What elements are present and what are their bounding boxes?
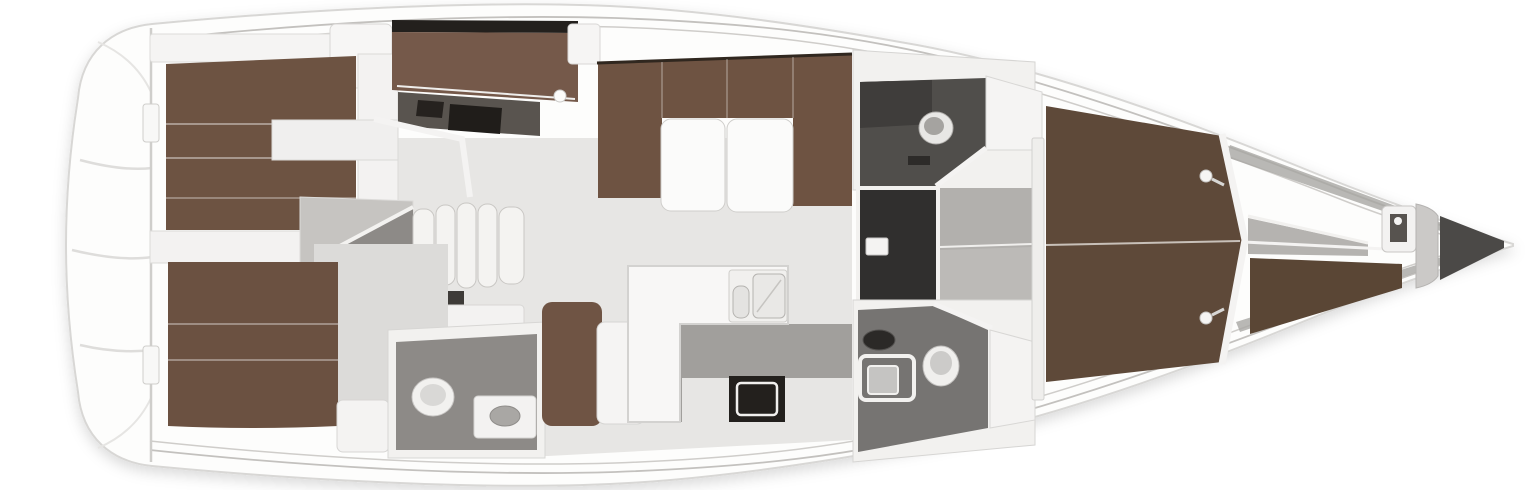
passage-floor-light (940, 247, 1032, 304)
passageway (940, 188, 1032, 304)
yacht-floorplan: Sailing yacht interior floor plan — over… (0, 0, 1533, 490)
step (499, 207, 524, 284)
toilet-bowl (420, 384, 446, 406)
step (457, 203, 476, 288)
step (478, 204, 497, 287)
salon-locker (568, 24, 600, 64)
double-berth (168, 262, 338, 428)
toilet-bowl (924, 117, 944, 135)
floor-mat (908, 156, 930, 165)
aft-head (388, 322, 545, 458)
corner-cabinet (990, 330, 1035, 428)
locker-bulkhead (1416, 204, 1438, 288)
aft-walkway (150, 231, 316, 263)
port-fwd-head (853, 50, 1042, 190)
bow-tip-shadow (1440, 216, 1504, 280)
toilet-bowl (930, 351, 952, 375)
vanity-item (448, 104, 502, 134)
starboard-fwd-head (853, 300, 1035, 462)
salon-table-leaf (727, 119, 793, 212)
reading-light (1200, 170, 1212, 182)
shower-control (866, 238, 888, 255)
fwd-bulkhead (1032, 138, 1044, 400)
vanity-item (416, 100, 444, 118)
reading-light (1200, 312, 1212, 324)
berth-entry-notch (272, 120, 398, 160)
salon-table-leaf (661, 119, 725, 211)
floorplan-svg: Sailing yacht interior floor plan — over… (0, 0, 1533, 490)
galley-bench (542, 302, 602, 426)
reading-light (554, 90, 566, 102)
washbasin (863, 330, 895, 350)
headboard-bar (392, 20, 578, 33)
windlass-drum (1394, 217, 1402, 225)
shower-room (858, 188, 938, 302)
cabin-cabinet (337, 400, 389, 452)
bow-seat-wedge (1250, 258, 1402, 334)
washbasin (490, 406, 520, 426)
salon (597, 54, 852, 212)
faucet (733, 286, 749, 318)
transom-notch-top (143, 104, 159, 142)
transom-notch-bottom (143, 346, 159, 384)
owners-cabin (1032, 106, 1245, 400)
shower-grate (868, 366, 898, 394)
